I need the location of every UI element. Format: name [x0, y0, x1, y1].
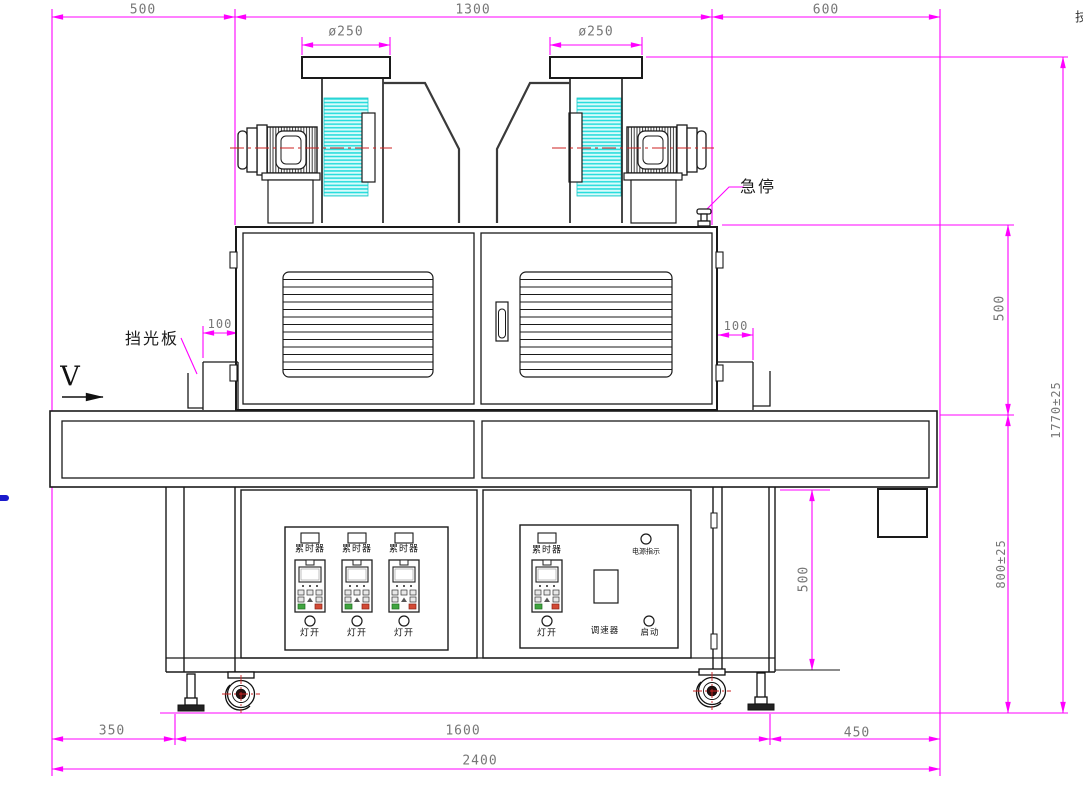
hour-meter-display [395, 533, 413, 543]
fan-impeller-hatch [324, 98, 368, 196]
fan-impeller-hatch [577, 98, 621, 196]
dim-duct-left: ø250 [328, 26, 363, 39]
dim-overall-height: 1770±25 [1050, 381, 1062, 439]
start-button [644, 616, 654, 626]
label-hour-meter-3: 累时器 [389, 546, 419, 555]
dim-top-center: 1300 [455, 4, 490, 17]
hinge [716, 365, 723, 381]
outfeed-shelf-right [718, 362, 770, 410]
hour-meter-display [538, 533, 556, 543]
hinge [230, 365, 237, 381]
exhaust-fan-right [497, 57, 714, 223]
label-lamp-switch-4: 灯开 [537, 630, 557, 639]
machine-drawing [0, 0, 1083, 786]
stray-blue-mark [0, 495, 9, 501]
fan-housing-wedge [383, 83, 459, 223]
label-hour-meter-1: 累时器 [295, 546, 325, 555]
label-start-button: 启动 [640, 629, 659, 638]
label-hour-meter-2: 累时器 [342, 546, 372, 555]
leveling-foot-right [748, 673, 774, 710]
lamp-switch-button [542, 616, 552, 626]
label-power-indicator: 电源指示 [632, 549, 660, 556]
leveling-foot-left [178, 674, 204, 711]
label-direction-v: V [60, 364, 80, 391]
dim-bottom-left: 350 [99, 725, 125, 738]
power-indicator-light [641, 534, 651, 544]
emergency-stop-button [697, 209, 711, 226]
label-light-shield: 挡光板 [125, 331, 179, 347]
label-speed-controller: 调速器 [591, 627, 620, 636]
hinge [230, 252, 237, 268]
duct-flange [550, 57, 642, 78]
dim-top-right: 600 [813, 4, 839, 17]
label-lamp-switch-1: 灯开 [300, 630, 320, 639]
fan-housing-wedge [497, 83, 570, 223]
light-shield-plate [188, 373, 203, 408]
timer-controller [389, 560, 419, 612]
lamp-switch-button [399, 616, 409, 626]
timer-controller [532, 560, 562, 612]
hinge [711, 634, 717, 649]
timer-controller [342, 560, 372, 612]
drawing-canvas: 500 1300 600 ø250 ø250 100 100 500 800±2… [0, 0, 1083, 786]
dim-top-left: 500 [130, 4, 156, 17]
light-shield-leader [181, 338, 197, 374]
hinge [716, 252, 723, 268]
dim-duct-right: ø250 [578, 26, 613, 39]
duct-flange [302, 57, 390, 78]
caster-left [222, 672, 260, 713]
dim-frame-height: 500 [798, 566, 811, 592]
lamp-switch-button [352, 616, 362, 626]
dim-bottom-center: 1600 [445, 725, 480, 738]
dim-oven-height: 500 [994, 295, 1007, 321]
speed-controller-knob [594, 570, 618, 603]
dim-bottom-right: 450 [844, 727, 870, 740]
dim-shelf-left: 100 [208, 318, 233, 330]
conveyor-table [50, 411, 937, 487]
uv-oven [230, 227, 723, 410]
hour-meter-display [301, 533, 319, 543]
caster-right [693, 669, 731, 710]
label-lamp-switch-2: 灯开 [347, 630, 367, 639]
dim-belt-height: 800±25 [995, 539, 1007, 588]
hinge [711, 513, 717, 528]
label-lamp-switch-3: 灯开 [394, 630, 414, 639]
lamp-switch-button [305, 616, 315, 626]
label-emergency-stop: 急停 [740, 179, 776, 195]
label-hour-meter-4: 累时器 [532, 547, 562, 556]
dim-overall-width: 2400 [462, 755, 497, 768]
exhaust-fan-left [230, 57, 459, 223]
hour-meter-display [348, 533, 366, 543]
junction-box [878, 489, 927, 537]
edge-clipped-text: 技 [1075, 12, 1083, 25]
dim-shelf-right: 100 [724, 320, 749, 332]
timer-controller [295, 560, 325, 612]
light-shield-plate [753, 371, 770, 406]
